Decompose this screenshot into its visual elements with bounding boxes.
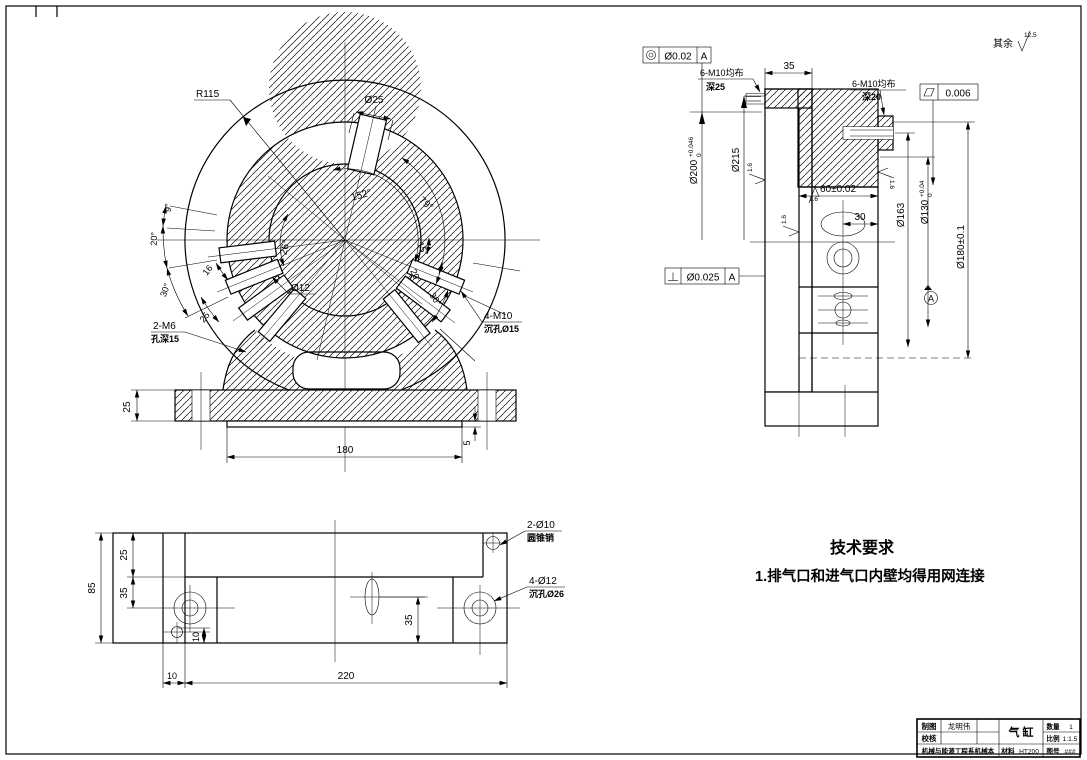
fcf-concentricity-datum: A xyxy=(701,52,708,63)
dim-35-right-label: 35 xyxy=(404,614,415,626)
fcf-flatness-value: 0.006 xyxy=(945,89,970,100)
dim-10-bottom-label: 10 xyxy=(167,671,177,681)
fcf-perp-value: Ø0.025 xyxy=(687,273,720,284)
pin-callout: 2-Ø10 圆锥销 xyxy=(500,520,562,545)
scale-value: 1:1.5 xyxy=(1063,736,1078,743)
d200-tol-dn: 0 xyxy=(696,153,703,157)
front-view: R115 Ø25 152° 79° 26° 9° 20° 30° 16 25 xyxy=(122,12,540,472)
material-label: 材料 xyxy=(1000,747,1015,756)
drawing-canvas: 其余 12.5 xyxy=(0,0,1087,760)
d130-tol-dn: 0 xyxy=(927,193,934,197)
section-geometry xyxy=(746,89,975,437)
drawn-name: 龙明伟 xyxy=(948,721,971,731)
dwgno-value: ### xyxy=(1064,749,1075,756)
datum-a: A xyxy=(924,285,938,305)
tech-req-title: 技术要求 xyxy=(830,538,895,557)
m10-right-depth: 深20 xyxy=(862,91,881,102)
d12-label: Ø12 xyxy=(291,283,310,294)
w25-label: 25 xyxy=(198,310,212,324)
fcf-concentricity: Ø0.02 A xyxy=(643,47,711,63)
m6-callout: 2-M6 孔深15 xyxy=(151,321,246,352)
dim-35-left-label: 35 xyxy=(119,587,130,599)
m10-callout: 4-M10 沉孔Ø15 xyxy=(461,291,522,334)
finish-value: 1.6 xyxy=(747,163,754,172)
pin-note: 圆锥销 xyxy=(527,532,554,543)
section-view: Ø0.02 A 0.006 Ø0.025 A xyxy=(643,47,978,437)
dim-180-label: 180 xyxy=(337,445,354,456)
dim-85-label: 85 xyxy=(87,582,98,594)
dim-30-label: 30 xyxy=(854,212,866,223)
dwgno-label: 图号 xyxy=(1046,747,1060,756)
dim-5-label: 5 xyxy=(462,440,472,445)
roughness-icon xyxy=(749,174,765,184)
cbore-note: 沉孔Ø26 xyxy=(529,588,564,599)
roughness-icon xyxy=(878,168,894,178)
concentricity-icon xyxy=(647,51,656,60)
m10-cbore: 沉孔Ø15 xyxy=(484,323,519,334)
bottom-geometry xyxy=(113,520,520,662)
d25-label: Ø25 xyxy=(365,95,384,106)
d130-tol-up: +0.04 xyxy=(919,180,926,197)
title-block: 制图 龙明伟 校核 机械与能源工程系机械本 气 缸 材料 HT200 数量 1 … xyxy=(917,719,1080,757)
m10-left-callout: 6-M10均布 深25 xyxy=(698,67,760,92)
drawn-label: 制图 xyxy=(922,721,937,731)
fcf-perp-datum: A xyxy=(729,273,736,284)
checked-label: 校核 xyxy=(922,733,937,743)
r115-label: R115 xyxy=(196,89,220,100)
general-roughness-note: 其余 12.5 xyxy=(993,31,1037,51)
a20-left-label: 20° xyxy=(149,232,159,246)
d130-base: Ø130 xyxy=(920,199,931,224)
d200-base: Ø200 xyxy=(689,159,700,184)
datum-a-label: A xyxy=(928,294,934,304)
a30-left-label: 30° xyxy=(158,281,172,298)
m10-right-label: 6-M10均布 xyxy=(852,78,896,89)
m6-depth: 孔深15 xyxy=(151,333,179,344)
material-value: HT200 xyxy=(1019,749,1039,756)
a9-label: 9° xyxy=(163,203,174,213)
roughness-prefix: 其余 xyxy=(993,37,1013,50)
part-name: 气 缸 xyxy=(1007,725,1033,739)
m6-label: 2-M6 xyxy=(153,321,176,332)
w16-label: 16 xyxy=(201,263,215,277)
dim-35-label: 35 xyxy=(783,61,795,72)
d200-tol-up: +0.046 xyxy=(688,137,695,157)
finish-value: 1.6 xyxy=(809,196,818,203)
fcf-concentricity-value: Ø0.02 xyxy=(664,52,692,63)
qty-label: 数量 xyxy=(1046,722,1060,731)
finish-value: 1.6 xyxy=(781,215,788,224)
pin-label: 2-Ø10 xyxy=(527,520,555,531)
bottom-view: 85 25 35 10 10 220 35 2-Ø10 圆锥销 4-Ø12 沉孔… xyxy=(87,520,565,688)
engineering-drawing-page: 其余 12.5 xyxy=(0,0,1087,760)
thread-left xyxy=(746,94,765,105)
dim-10-left-label: 10 xyxy=(191,632,201,642)
d215-label: Ø215 xyxy=(731,147,742,172)
roughness-value: 12.5 xyxy=(1024,32,1037,39)
m10-label: 4-M10 xyxy=(484,311,513,322)
perpendicularity-icon xyxy=(668,273,678,281)
d163-label: Ø163 xyxy=(896,202,907,227)
cbore-label: 4-Ø12 xyxy=(529,576,557,587)
flatness-icon xyxy=(924,89,934,97)
d130-dim: Ø130 +0.04 0 xyxy=(919,180,934,224)
finish-value: 1.6 xyxy=(888,180,895,189)
dim-60-label: 60±0.02 xyxy=(820,184,857,195)
qty-value: 1 xyxy=(1069,724,1073,731)
d180-label: Ø180±0.1 xyxy=(956,225,967,269)
dim-25-label: 25 xyxy=(122,401,133,413)
m10-left-depth: 深25 xyxy=(706,81,725,92)
dim-25-label: 25 xyxy=(119,549,130,561)
technical-requirements: 技术要求 1.排气口和进气口内壁均得用网连接 xyxy=(755,538,985,585)
fcf-flatness: 0.006 xyxy=(920,84,978,185)
dim-220-label: 220 xyxy=(338,671,355,682)
scale-label: 比例 xyxy=(1046,734,1060,743)
d200-dim: Ø200 +0.046 0 xyxy=(688,137,703,185)
thread-right xyxy=(843,127,893,140)
org-name: 机械与能源工程系机械本 xyxy=(922,747,995,756)
tech-req-item-1: 1.排气口和进气口内壁均得用网连接 xyxy=(755,567,985,585)
m10-left-label: 6-M10均布 xyxy=(700,67,744,78)
